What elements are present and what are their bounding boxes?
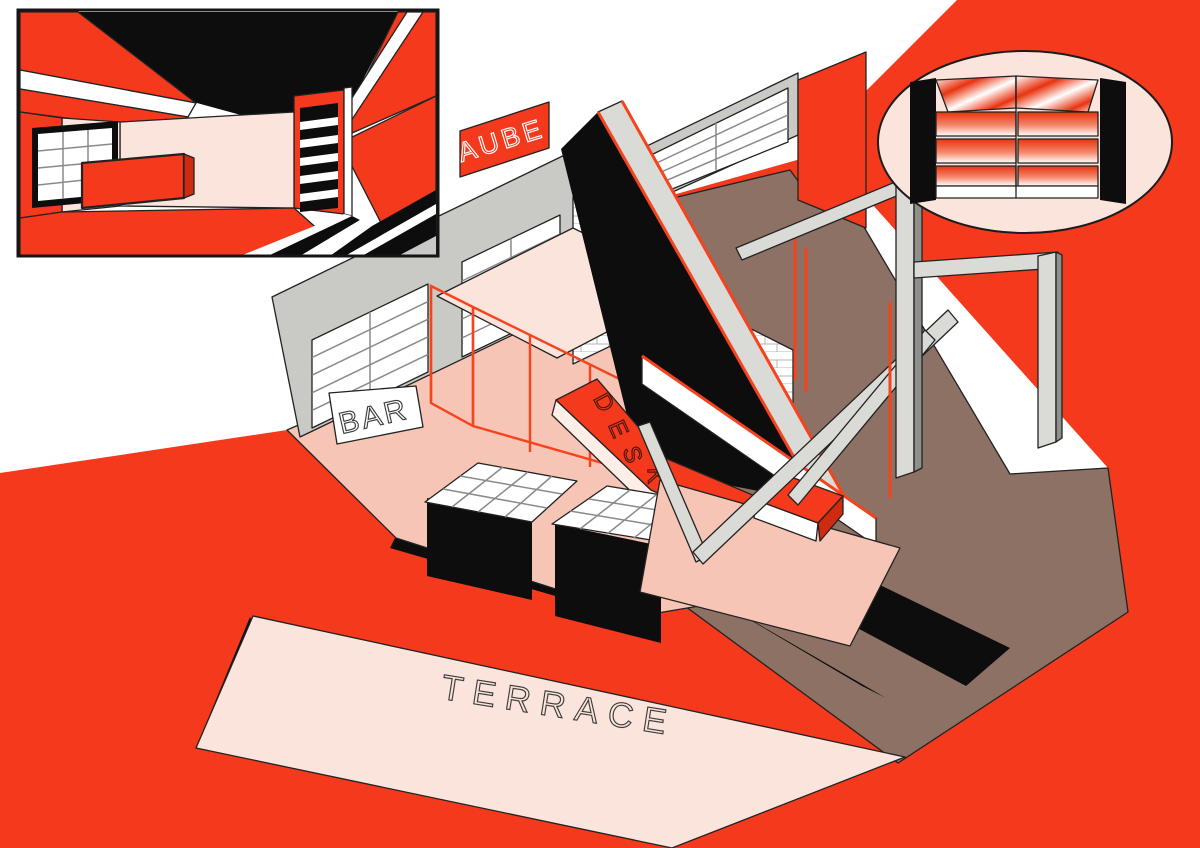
- shelf-side-right: [1100, 78, 1126, 204]
- shelf-detail: [910, 76, 1126, 204]
- inset-perspective-view: [18, 10, 438, 256]
- illustration-stage: D E S K BAR: [0, 0, 1200, 848]
- detail-callout-bubble: [878, 51, 1172, 233]
- inset-corridor-window: [300, 103, 338, 212]
- shelf-side-left: [910, 78, 936, 204]
- axonometric-illustration: D E S K BAR: [0, 0, 1200, 848]
